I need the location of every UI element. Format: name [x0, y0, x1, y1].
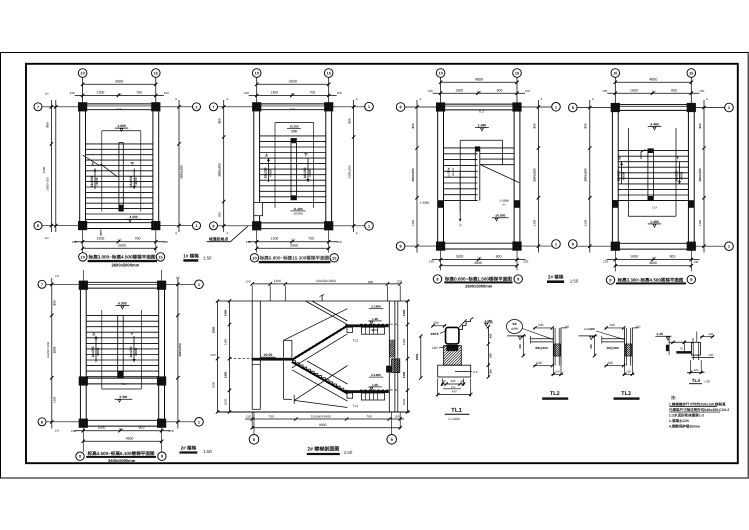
svg-text:B: B [227, 232, 229, 235]
svg-text:2600x250: 2600x250 [179, 165, 183, 179]
svg-text:4800: 4800 [474, 261, 482, 265]
svg-text:1.480: 1.480 [478, 124, 487, 128]
svg-text:150: 150 [55, 275, 60, 278]
svg-text:1:50: 1:50 [344, 450, 353, 455]
svg-text:10x260=2600: 10x260=2600 [311, 414, 331, 418]
svg-text:700: 700 [268, 414, 274, 418]
svg-text:150: 150 [451, 386, 456, 389]
svg-text:450: 450 [589, 344, 593, 349]
svg-text:150: 150 [477, 91, 482, 94]
svg-text:1480: 1480 [402, 371, 406, 378]
svg-text:TL3: TL3 [116, 107, 121, 111]
svg-text:900: 900 [532, 123, 536, 128]
svg-text:TL2: TL2 [353, 404, 359, 408]
svg-text:-0.5: -0.5 [473, 370, 478, 374]
svg-text:11.480: 11.480 [293, 207, 303, 211]
svg-text:450: 450 [489, 333, 493, 338]
svg-text:18x250: 18x250 [452, 167, 455, 176]
svg-text:18x250: 18x250 [616, 170, 620, 181]
svg-text:4800: 4800 [475, 78, 483, 82]
svg-text:TL4: TL4 [692, 378, 701, 383]
svg-text:200: 200 [368, 280, 373, 284]
svg-text:150: 150 [477, 257, 482, 260]
svg-text:700: 700 [309, 91, 315, 95]
svg-text:=2600: =2600 [134, 347, 138, 356]
svg-text:500: 500 [489, 353, 493, 358]
svg-text:=2600: =2600 [308, 168, 312, 177]
svg-text:B: B [592, 98, 594, 101]
svg-text:240: 240 [708, 353, 713, 357]
svg-text:1:2水泥砂浆抹面厚1-3: 1:2水泥砂浆抹面厚1-3 [669, 413, 704, 418]
svg-text:800: 800 [497, 89, 503, 93]
svg-text:2600x5000mm: 2600x5000mm [108, 458, 136, 463]
svg-text:1800: 1800 [456, 254, 464, 258]
svg-text:2600+250: 2600+250 [46, 177, 50, 191]
svg-text:130: 130 [396, 279, 401, 283]
svg-text:标高6.900~标高15.300楼梯平面图: 标高6.900~标高15.300楼梯平面图 [259, 255, 330, 260]
svg-text:±0.000: ±0.000 [293, 212, 303, 216]
svg-text:240: 240 [609, 323, 615, 327]
svg-text:1.480: 1.480 [650, 220, 659, 224]
svg-text:440: 440 [452, 390, 457, 394]
svg-text:10: 10 [438, 71, 442, 76]
svg-text:@200: @200 [511, 327, 518, 330]
svg-text:B: B [227, 98, 229, 101]
svg-text:2600x250: 2600x250 [348, 165, 352, 179]
svg-text:150: 150 [44, 93, 49, 96]
svg-text:L-110b: L-110b [420, 200, 429, 204]
svg-text:18x250: 18x250 [129, 346, 133, 357]
svg-text:150: 150 [176, 277, 181, 280]
svg-text:50: 50 [680, 348, 683, 351]
svg-text:150: 150 [119, 428, 124, 431]
svg-text:1800: 1800 [630, 254, 638, 258]
svg-text:±0.00: ±0.00 [264, 353, 273, 357]
svg-text:150: 150 [117, 93, 122, 96]
svg-text:2.1480: 2.1480 [371, 305, 381, 309]
svg-text:1300: 1300 [532, 219, 536, 226]
svg-text:1480: 1480 [224, 371, 228, 378]
svg-text:240: 240 [708, 332, 713, 336]
svg-text:7: 7 [212, 104, 214, 109]
svg-text:900: 900 [52, 300, 56, 305]
svg-text:L-110b: L-110b [500, 199, 509, 203]
svg-text:240: 240 [536, 361, 542, 365]
svg-text:TL1: TL1 [451, 407, 462, 414]
svg-text:10: 10 [252, 255, 256, 260]
svg-text:±0.0: ±0.0 [210, 353, 216, 357]
svg-text:450: 450 [518, 344, 522, 349]
svg-text:120: 120 [694, 368, 699, 372]
svg-text:2600x250: 2600x250 [178, 343, 182, 357]
svg-text:2600x250: 2600x250 [698, 168, 702, 182]
svg-text:1800: 1800 [630, 89, 638, 93]
svg-text:7: 7 [41, 282, 43, 287]
svg-text:18x250: 18x250 [674, 170, 678, 181]
svg-text:坡道起坡点: 坡道起坡点 [209, 237, 229, 242]
svg-text:18x250: 18x250 [129, 176, 133, 187]
svg-text:150: 150 [44, 237, 49, 240]
svg-text:130: 130 [70, 91, 75, 95]
svg-text:1:20: 1:20 [704, 379, 710, 383]
svg-text:上: 上 [91, 161, 95, 166]
svg-text:凡梯梁尺寸除注明外均240x300,C2X-2: 凡梯梁尺寸除注明外均240x300,C2X-2 [668, 407, 729, 412]
svg-text:850: 850 [218, 212, 222, 217]
svg-text:2600x250: 2600x250 [218, 163, 222, 177]
svg-text:2600: 2600 [115, 80, 123, 84]
svg-text:Φ8: Φ8 [512, 322, 516, 326]
svg-text:2# 楼梯: 2# 楼梯 [548, 274, 564, 279]
svg-text:700: 700 [136, 91, 142, 95]
svg-text:300: 300 [489, 369, 493, 374]
svg-text:700: 700 [366, 414, 372, 418]
svg-text:=2600: =2600 [622, 171, 626, 180]
svg-text:130: 130 [693, 260, 698, 264]
svg-text:上: 上 [92, 331, 96, 336]
svg-text:2600: 2600 [290, 243, 298, 247]
svg-text:130: 130 [246, 240, 251, 244]
svg-text:150: 150 [117, 239, 122, 242]
svg-text:1# 楼梯: 1# 楼梯 [183, 254, 199, 259]
svg-text:140: 140 [432, 346, 438, 350]
svg-text:下: 下 [130, 162, 134, 166]
svg-text:800: 800 [496, 254, 502, 258]
svg-text:2600x5000mm: 2600x5000mm [465, 283, 493, 288]
svg-text:1.480: 1.480 [484, 319, 492, 323]
svg-text:7: 7 [37, 104, 39, 109]
svg-text:130: 130 [428, 89, 433, 93]
svg-text:1800: 1800 [98, 426, 106, 430]
svg-text:TL4: TL4 [121, 382, 127, 386]
svg-text:18x250: 18x250 [263, 167, 267, 178]
svg-text:TL3: TL3 [479, 110, 485, 114]
svg-text:标高0.000~标高1.500楼梯平面图: 标高0.000~标高1.500楼梯平面图 [444, 276, 512, 281]
svg-text:2# 楼梯: 2# 楼梯 [181, 446, 197, 451]
svg-text:130: 130 [602, 89, 607, 93]
svg-text:1020: 1020 [224, 398, 228, 405]
svg-text:900: 900 [46, 122, 50, 127]
svg-text:150: 150 [164, 91, 169, 95]
svg-text:2600x250: 2600x250 [411, 168, 415, 182]
svg-text:TL3: TL3 [290, 107, 295, 111]
svg-text:2960: 2960 [212, 326, 216, 333]
svg-text:1.900: 1.900 [117, 124, 126, 128]
svg-text:1480: 1480 [224, 309, 228, 316]
svg-text:TL3: TL3 [621, 391, 631, 397]
svg-text:注:: 注: [671, 395, 676, 400]
svg-text:1300: 1300 [411, 219, 415, 226]
svg-text:13x250=3250: 13x250=3250 [47, 341, 50, 358]
svg-text:340: 340 [451, 379, 456, 383]
svg-text:3600: 3600 [42, 166, 46, 173]
svg-text:B: B [541, 98, 543, 101]
svg-text:1.48: 1.48 [372, 317, 378, 321]
svg-text:150: 150 [168, 429, 173, 433]
svg-text:标高4.500~标高6.100楼梯平面图: 标高4.500~标高6.100楼梯平面图 [86, 451, 154, 456]
svg-text:B: B [420, 98, 422, 101]
svg-text:TL4: TL4 [652, 205, 658, 209]
svg-text:900: 900 [411, 123, 415, 128]
svg-text:2.1480: 2.1480 [371, 373, 381, 377]
svg-text:6.900: 6.900 [118, 302, 127, 306]
svg-text:2Φ18: 2Φ18 [431, 332, 439, 336]
svg-text:1400: 1400 [274, 279, 282, 283]
svg-text:上: 上 [459, 223, 463, 227]
svg-text:标高3.000~标高4.500楼梯平面图: 标高3.000~标高4.500楼梯平面图 [87, 255, 155, 260]
svg-text:B: B [175, 98, 177, 101]
svg-text:B: B [175, 232, 177, 235]
svg-text:4.钢筋保护层25mm: 4.钢筋保护层25mm [669, 423, 700, 428]
svg-text:1300: 1300 [698, 219, 702, 226]
svg-text:18x250: 18x250 [303, 167, 307, 178]
svg-text:±0.000: ±0.000 [495, 214, 505, 218]
svg-text:2600x250: 2600x250 [532, 168, 536, 182]
svg-text:50: 50 [443, 379, 447, 383]
svg-text:150: 150 [55, 430, 60, 433]
svg-text:10x260=2600: 10x260=2600 [316, 279, 336, 283]
svg-text:130: 130 [523, 260, 528, 264]
svg-text:1480: 1480 [224, 338, 228, 345]
svg-text:240: 240 [608, 361, 614, 365]
svg-text:150: 150 [246, 414, 251, 418]
svg-text:Φ8@200: Φ8@200 [607, 346, 620, 350]
svg-text:150: 150 [245, 279, 250, 283]
svg-text:2600: 2600 [289, 80, 297, 84]
svg-text:1.混凝土C25: 1.混凝土C25 [669, 418, 689, 423]
svg-text:=2600: =2600 [134, 177, 138, 186]
svg-text:上: 上 [618, 155, 622, 160]
svg-text:130: 130 [429, 260, 434, 264]
svg-text:15.300: 15.300 [289, 125, 299, 129]
svg-text:4800: 4800 [649, 78, 657, 82]
svg-text:900: 900 [698, 123, 702, 128]
svg-text:10: 10 [80, 71, 84, 76]
svg-text:1300: 1300 [97, 236, 105, 240]
svg-text:900: 900 [348, 118, 352, 123]
svg-text:1020: 1020 [402, 398, 406, 405]
svg-text:=2600: =2600 [269, 168, 273, 177]
svg-text:10: 10 [255, 71, 259, 76]
svg-text:400.0: 400.0 [371, 328, 378, 332]
svg-text:=2600: =2600 [95, 177, 99, 186]
svg-text:150: 150 [337, 91, 342, 95]
svg-text:2960: 2960 [415, 353, 419, 360]
svg-text:130: 130 [71, 429, 76, 433]
svg-text:700: 700 [135, 236, 141, 240]
svg-text:上: 上 [265, 152, 269, 157]
svg-text:18x250: 18x250 [91, 346, 95, 357]
svg-text:1300: 1300 [584, 219, 588, 226]
svg-text:150: 150 [291, 93, 296, 96]
svg-text:1300: 1300 [270, 91, 278, 95]
svg-text:4.480: 4.480 [650, 123, 659, 127]
svg-text:2600x5000mm: 2600x5000mm [112, 262, 140, 267]
svg-text:标高3.300~标高4.500楼梯平面图: 标高3.300~标高4.500楼梯平面图 [617, 277, 684, 282]
svg-text:1300: 1300 [271, 236, 279, 240]
svg-text:150: 150 [555, 370, 560, 374]
svg-text:B: B [356, 232, 358, 235]
svg-text:B: B [356, 98, 358, 101]
svg-text:240: 240 [538, 323, 544, 327]
svg-text:L=1400: L=1400 [448, 417, 459, 421]
svg-text:150: 150 [394, 414, 399, 418]
svg-text:1.05: 1.05 [372, 383, 378, 387]
svg-text:2600x250: 2600x250 [584, 168, 588, 182]
svg-text:900: 900 [584, 123, 588, 128]
svg-text:L-110a: L-110a [447, 167, 451, 176]
svg-text:4600: 4600 [319, 423, 327, 427]
svg-text:1300: 1300 [52, 396, 56, 403]
svg-text:1300: 1300 [97, 91, 105, 95]
svg-text:2500: 2500 [212, 381, 216, 388]
svg-text:下: 下 [676, 156, 680, 160]
svg-text:1:50: 1:50 [570, 278, 579, 283]
svg-text:顶层: 顶层 [291, 130, 297, 134]
svg-text:150: 150 [699, 89, 704, 93]
svg-text:150: 150 [336, 240, 341, 244]
svg-text:1.48: 1.48 [656, 332, 663, 336]
svg-text:下: 下 [304, 153, 308, 157]
svg-text:150: 150 [525, 89, 530, 93]
svg-text:700: 700 [308, 236, 314, 240]
svg-text:4800: 4800 [126, 437, 134, 441]
svg-text:Φ8@200: Φ8@200 [535, 346, 548, 350]
svg-text:3.300: 3.300 [119, 395, 127, 399]
svg-text:2600: 2600 [118, 243, 126, 247]
svg-text:=2600: =2600 [680, 171, 684, 180]
svg-text:4800: 4800 [649, 261, 657, 265]
svg-text:下: 下 [130, 332, 134, 336]
svg-text:1:50: 1:50 [203, 449, 212, 454]
svg-text:TL2: TL2 [550, 391, 560, 397]
svg-text:800: 800 [671, 89, 677, 93]
svg-text:800: 800 [139, 426, 145, 430]
svg-text:650: 650 [163, 240, 168, 244]
svg-text:150: 150 [291, 239, 296, 242]
svg-text:150: 150 [651, 91, 656, 94]
svg-text:2# 楼梯剖面图: 2# 楼梯剖面图 [307, 446, 339, 453]
svg-text:1800: 1800 [455, 89, 463, 93]
svg-text:=2600: =2600 [96, 347, 100, 356]
svg-text:B: B [706, 98, 708, 101]
svg-text:1480: 1480 [402, 338, 406, 345]
svg-text:1480: 1480 [402, 309, 406, 316]
svg-text:850: 850 [218, 118, 222, 123]
svg-text:150: 150 [626, 370, 631, 374]
svg-text:130: 130 [72, 240, 77, 244]
svg-text:4.400: 4.400 [130, 215, 138, 219]
svg-text:10: 10 [613, 71, 617, 76]
svg-text:1.楼梯踏步尺寸均为250x150,梯段宽: 1.楼梯踏步尺寸均为250x150,梯段宽 [669, 401, 726, 406]
svg-text:1:50: 1:50 [203, 256, 212, 261]
svg-text:L=1400: L=1400 [584, 327, 595, 331]
svg-text:150: 150 [652, 257, 657, 260]
svg-text:2600: 2600 [52, 346, 56, 353]
svg-text:18x250: 18x250 [90, 176, 94, 187]
svg-text:10: 10 [81, 254, 85, 259]
svg-text:130: 130 [603, 260, 608, 264]
svg-text:TL2: TL2 [353, 339, 359, 343]
svg-text:800: 800 [670, 254, 676, 258]
svg-text:130: 130 [244, 91, 249, 95]
